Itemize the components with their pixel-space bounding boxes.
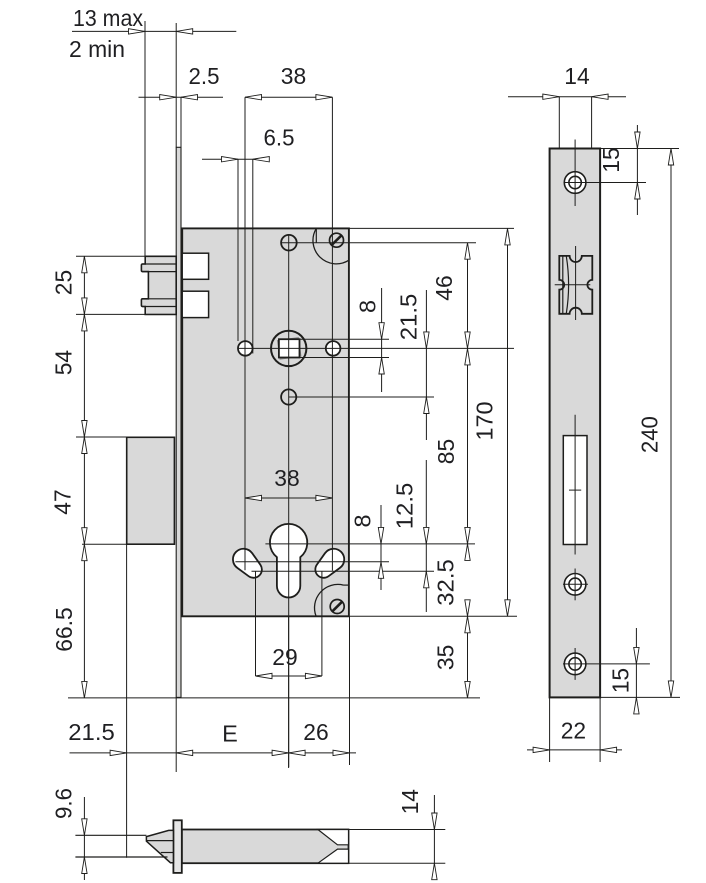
svg-text:14: 14 bbox=[397, 789, 423, 814]
svg-text:38: 38 bbox=[281, 63, 306, 89]
svg-text:85: 85 bbox=[433, 439, 459, 464]
svg-text:14: 14 bbox=[564, 63, 589, 89]
svg-text:15: 15 bbox=[608, 668, 634, 693]
svg-text:6.5: 6.5 bbox=[264, 125, 295, 151]
svg-text:15: 15 bbox=[598, 147, 624, 172]
svg-text:8: 8 bbox=[355, 300, 381, 313]
svg-text:38: 38 bbox=[274, 465, 299, 491]
svg-text:8: 8 bbox=[350, 514, 376, 527]
svg-text:25: 25 bbox=[51, 270, 77, 295]
svg-text:22: 22 bbox=[561, 718, 586, 744]
svg-text:13 max: 13 max bbox=[73, 5, 143, 31]
svg-text:32.5: 32.5 bbox=[433, 559, 459, 606]
svg-text:E: E bbox=[222, 721, 238, 747]
svg-text:54: 54 bbox=[51, 350, 77, 375]
svg-text:240: 240 bbox=[637, 416, 663, 453]
svg-text:2 min: 2 min bbox=[69, 36, 125, 62]
svg-text:29: 29 bbox=[272, 644, 297, 670]
svg-text:66.5: 66.5 bbox=[51, 607, 77, 652]
svg-text:12.5: 12.5 bbox=[392, 483, 418, 530]
svg-text:170: 170 bbox=[472, 402, 498, 441]
svg-text:26: 26 bbox=[303, 719, 328, 745]
svg-text:47: 47 bbox=[50, 489, 76, 514]
svg-text:35: 35 bbox=[433, 645, 459, 670]
svg-text:46: 46 bbox=[431, 275, 457, 300]
svg-text:21.5: 21.5 bbox=[68, 719, 115, 745]
svg-text:9.6: 9.6 bbox=[51, 788, 77, 819]
svg-text:21.5: 21.5 bbox=[396, 294, 422, 341]
svg-text:2.5: 2.5 bbox=[189, 63, 220, 89]
